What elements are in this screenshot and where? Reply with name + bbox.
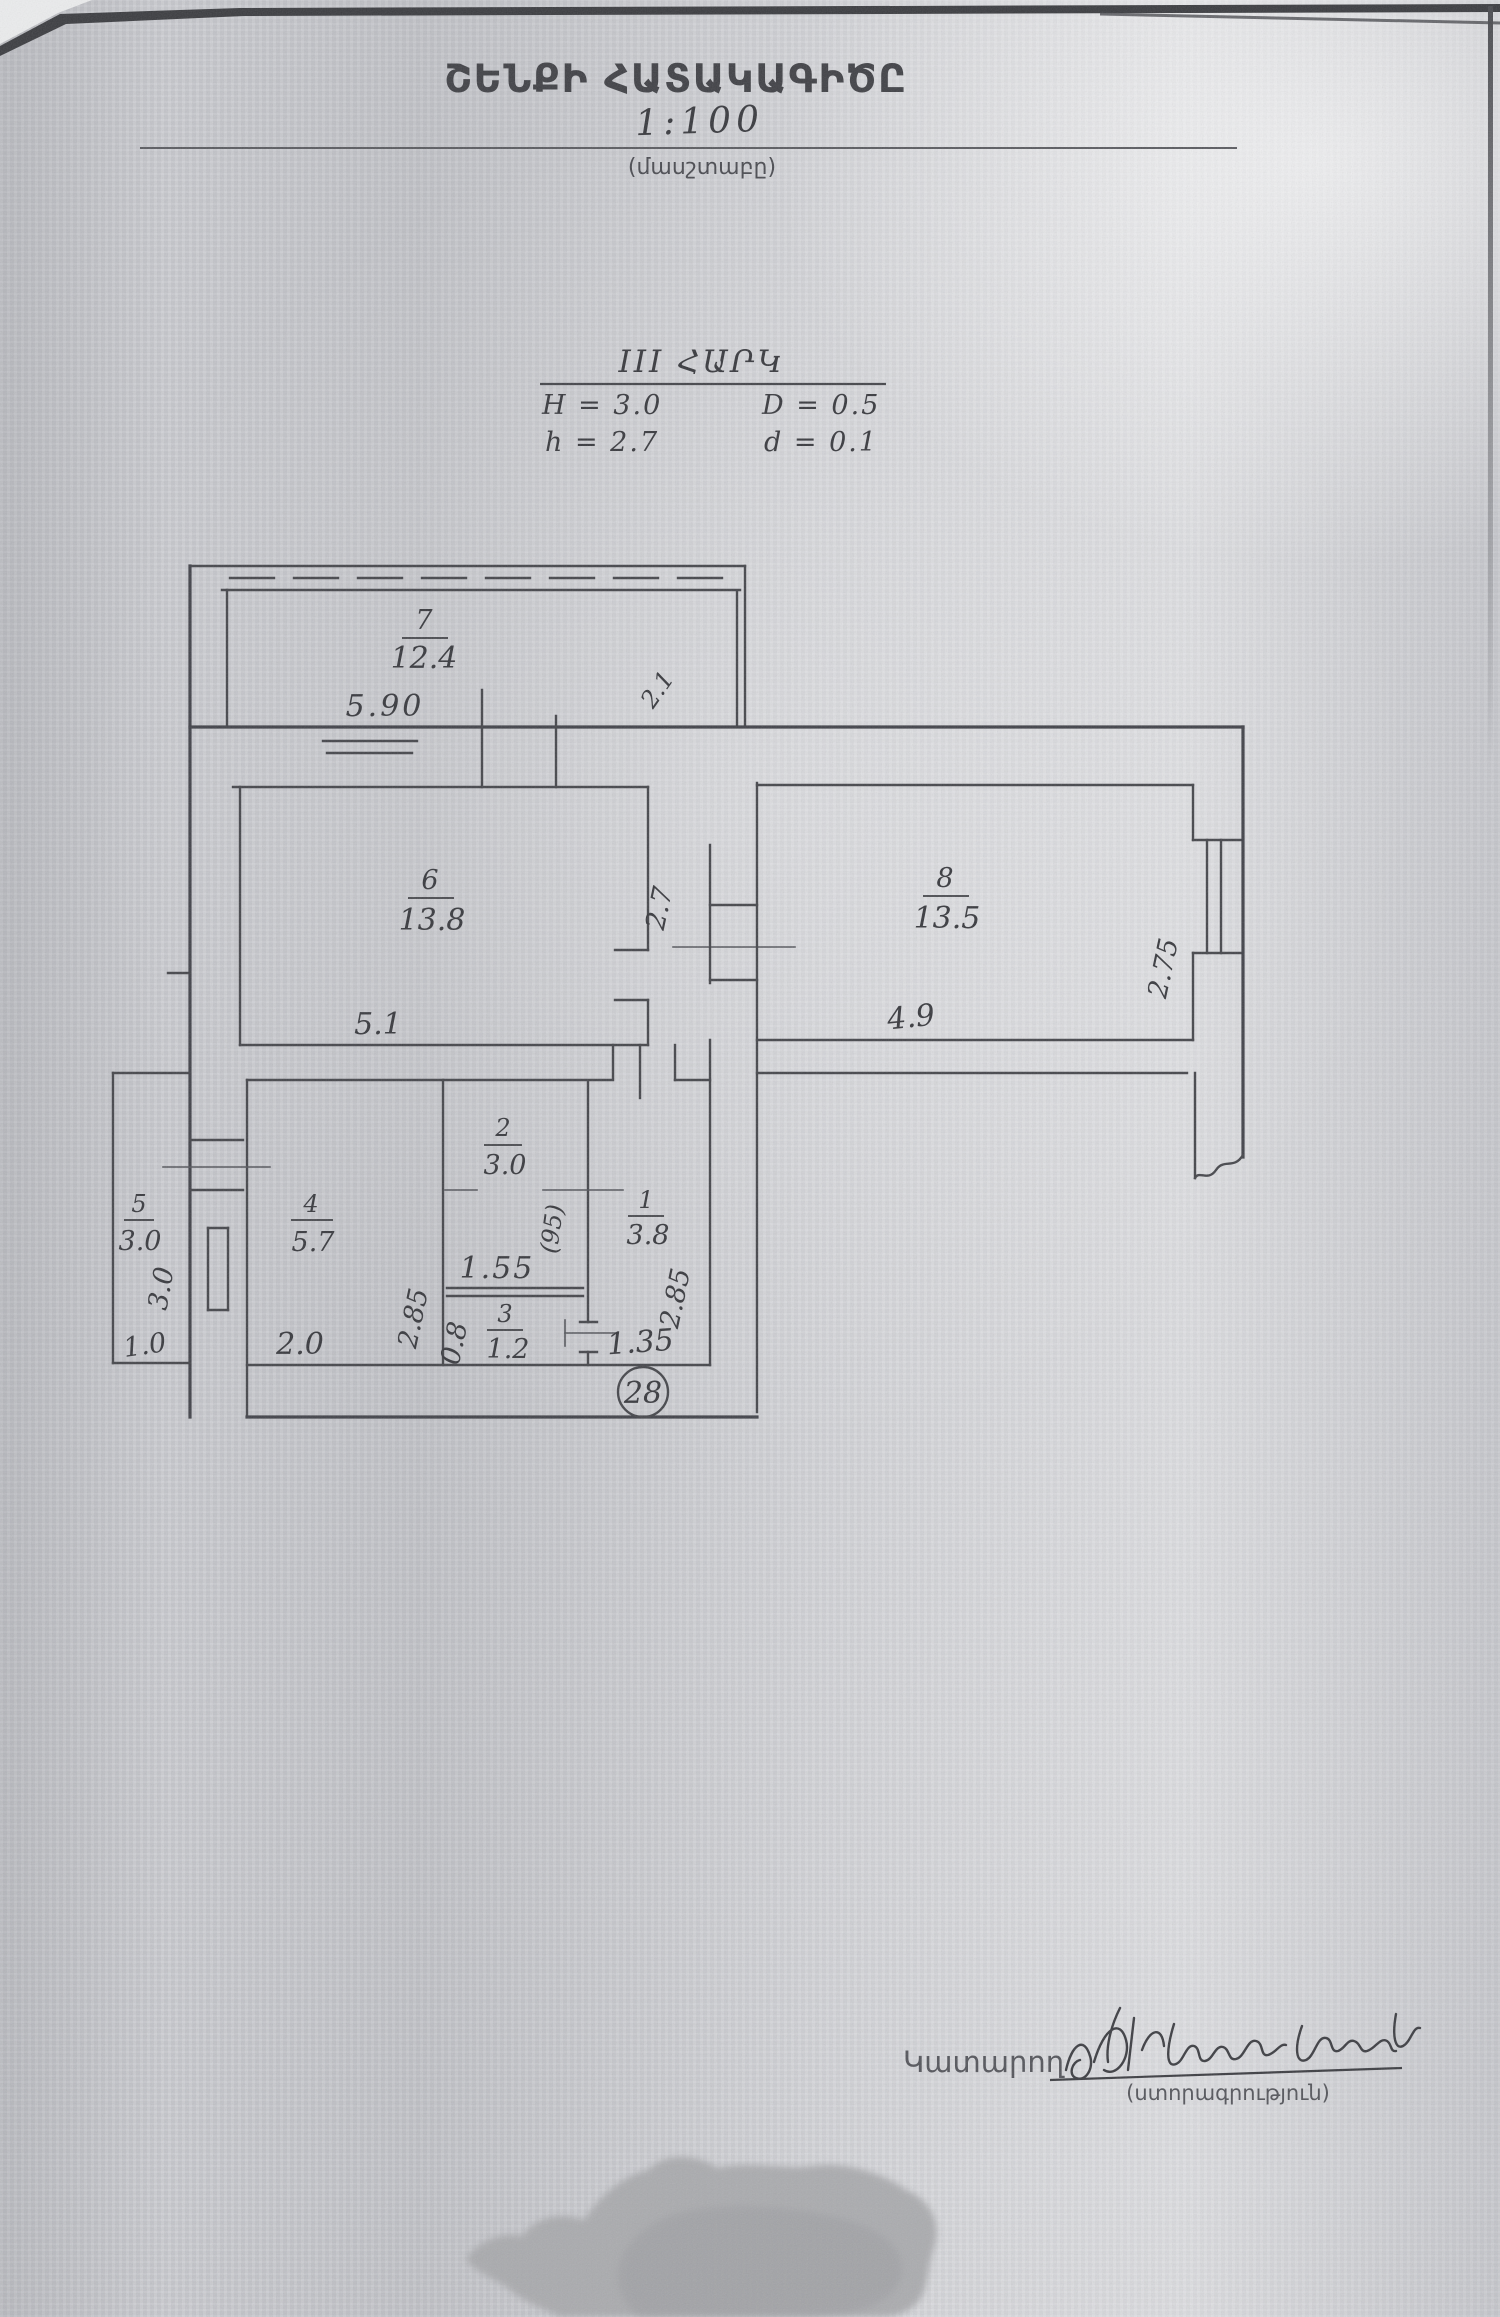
signature-caption: (ստորագրություն): [1126, 2081, 1330, 2105]
wall-break-symbol: [1195, 1155, 1243, 1178]
room4-area: 5.7: [292, 1227, 336, 1258]
dim-room3-depth: 0.8: [435, 1319, 474, 1367]
dimension-labels: 5.90 2.1 5.1 2.7 4.9 2.75 3.0 1.0 2.0 2.…: [121, 666, 1185, 1368]
dim-balcony7-depth: 2.1: [634, 666, 679, 714]
dim-room8-depth: 2.75: [1142, 936, 1185, 1002]
spec-H: H = 3.0: [541, 390, 662, 421]
scan-top-border: [0, 4, 1500, 56]
room4-number: 4: [302, 1190, 318, 1218]
signature-underline: [1050, 2068, 1402, 2080]
dim-balcony5-depth: 3.0: [143, 1265, 181, 1313]
dim-room4-depth: 2.85: [392, 1286, 435, 1352]
dim-balcony5-width: 1.0: [121, 1327, 168, 1364]
room3-number: 3: [497, 1300, 512, 1328]
spec-h: h = 2.7: [545, 427, 659, 458]
scanned-floor-plan-page: ՇԵՆՔԻ ՀԱՏԱԿԱԳԻԾԸ 1:100 (մասշտաբը) III ՀԱ…: [0, 0, 1500, 2317]
room7-number: 7: [415, 605, 433, 636]
dim-hall-passage: 2.7: [640, 883, 680, 933]
room2-number: 2: [494, 1114, 510, 1142]
dim-room8-width: 4.9: [884, 998, 936, 1038]
dim-closet-width: 1.55: [460, 1251, 535, 1286]
spec-d: d = 0.1: [764, 427, 878, 458]
executor-label: Կատարող: [903, 2045, 1065, 2079]
floor-label: III ՀԱՐԿ: [618, 344, 786, 380]
dim-room4-width: 2.0: [275, 1327, 324, 1362]
room7-area: 12.4: [391, 641, 458, 676]
room5-number: 5: [131, 1190, 146, 1218]
room5-area: 3.0: [119, 1226, 162, 1257]
dim-room1-width: 1.35: [606, 1323, 675, 1363]
dim-room6-width: 5.1: [354, 1007, 402, 1042]
scale-caption: (մասշտաբը): [628, 155, 776, 180]
apartment-number: 28: [623, 1376, 662, 1411]
page-title: ՇԵՆՔԻ ՀԱՏԱԿԱԳԻԾԸ: [444, 57, 907, 102]
signature-scribble: [1066, 2008, 1420, 2079]
signature-block: Կատարող (ստորագրություն): [903, 2008, 1420, 2105]
scan-right-border: [1488, 6, 1493, 766]
room2-area: 3.0: [484, 1150, 527, 1181]
floor-plan-drawing: ՇԵՆՔԻ ՀԱՏԱԿԱԳԻԾԸ 1:100 (մասշտաբը) III ՀԱ…: [0, 0, 1500, 2317]
scale-value: 1:100: [635, 99, 765, 144]
dim-room1-depth: 2.85: [654, 1266, 697, 1332]
spec-D: D = 0.5: [761, 390, 880, 421]
room1-area: 3.8: [627, 1220, 670, 1251]
room8-number: 8: [936, 863, 953, 894]
dim-door-width: (95): [535, 1203, 570, 1256]
room6-number: 6: [421, 865, 438, 896]
room3-area: 1.2: [487, 1334, 530, 1365]
scan-top-border-2: [1100, 14, 1500, 23]
room8-area: 13.5: [914, 901, 981, 936]
room6-area: 13.8: [399, 903, 466, 938]
dim-balcony7-width: 5.90: [346, 689, 425, 724]
header-block: ՇԵՆՔԻ ՀԱՏԱԿԱԳԻԾԸ 1:100 (մասշտաբը): [140, 57, 1237, 180]
floor-header: III ՀԱՐԿ H = 3.0 D = 0.5 h = 2.7 d = 0.1: [540, 344, 886, 458]
room1-number: 1: [638, 1186, 653, 1214]
